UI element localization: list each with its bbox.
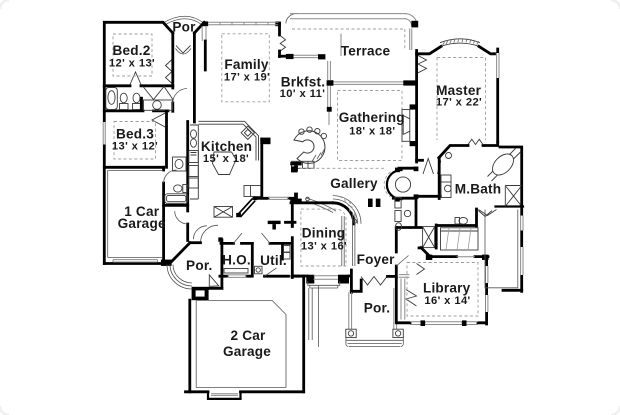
svg-text:Garage: Garage — [118, 216, 166, 231]
svg-text:18' x 18': 18' x 18' — [349, 126, 395, 138]
svg-text:Gallery: Gallery — [330, 176, 378, 191]
svg-text:10' x 11': 10' x 11' — [280, 88, 326, 100]
svg-text:Util.: Util. — [260, 253, 287, 268]
svg-text:17' x 22': 17' x 22' — [436, 97, 482, 109]
svg-text:M.Bath: M.Bath — [455, 182, 502, 197]
svg-text:Dining: Dining — [302, 226, 345, 241]
svg-text:Kitchen: Kitchen — [201, 139, 252, 154]
svg-text:Foyer: Foyer — [357, 252, 396, 267]
svg-text:Por: Por — [172, 20, 196, 35]
svg-text:H.O.: H.O. — [222, 253, 251, 268]
svg-text:13' x 16': 13' x 16' — [301, 241, 347, 253]
svg-text:Gathering: Gathering — [339, 110, 405, 125]
svg-text:Por.: Por. — [186, 258, 213, 273]
svg-text:Bed.3: Bed.3 — [116, 127, 154, 142]
svg-text:16' x 14': 16' x 14' — [424, 295, 470, 307]
svg-text:Por.: Por. — [364, 301, 391, 316]
svg-text:12' x 13': 12' x 13' — [109, 58, 155, 70]
svg-text:Terrace: Terrace — [341, 44, 391, 59]
svg-text:2 Car: 2 Car — [230, 328, 266, 343]
svg-text:13' x 12': 13' x 12' — [112, 141, 158, 153]
svg-text:Garage: Garage — [223, 344, 271, 359]
svg-text:Library: Library — [423, 281, 471, 296]
svg-text:Master: Master — [436, 83, 482, 98]
svg-text:Bed.2: Bed.2 — [112, 43, 150, 58]
svg-text:15' x 18': 15' x 18' — [203, 153, 249, 165]
svg-text:Family: Family — [224, 57, 269, 72]
svg-text:17' x 19': 17' x 19' — [224, 72, 270, 84]
